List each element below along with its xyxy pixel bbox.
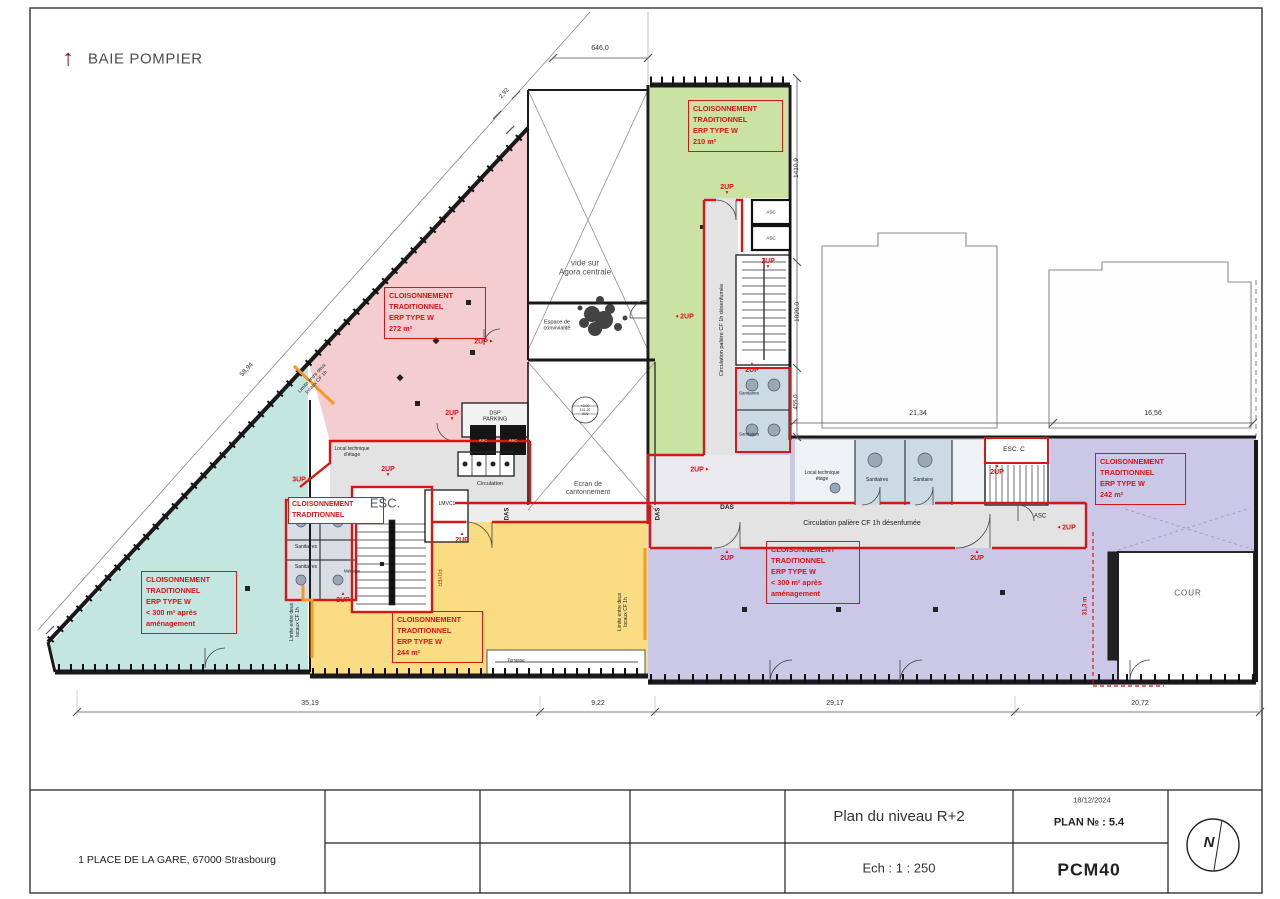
exit-marker: ◄2UP <box>674 314 694 321</box>
sanitaires-label-1: Sanitaires <box>295 545 317 551</box>
triangle-right-icon: ► <box>489 340 494 345</box>
dim-bottom-1: 35,19 <box>301 700 319 708</box>
project-address: 1 PLACE DE LA GARE, 67000 Strasbourg <box>78 854 276 866</box>
neighbour-buildings <box>822 233 1256 437</box>
exit-marker: 2UP► <box>474 339 494 346</box>
espace-convivialite-label: Espace de convivialité <box>544 320 571 333</box>
dim-right-3: 455,0 <box>793 394 800 409</box>
zone-label-teal: CLOISONNEMENT TRADITIONNEL ERP TYPE W < … <box>141 571 237 634</box>
sanitaires-label-5: Sanitaires <box>739 431 759 436</box>
elevation-values: +0.00 141.20 IGN <box>580 404 591 416</box>
dim-bottom-3: 29,17 <box>826 700 844 708</box>
dim-top: 646,0 <box>591 45 609 53</box>
foyer-label: FOYER <box>435 569 441 586</box>
exit-marker: ▲2UP <box>990 464 1004 476</box>
dim-mid-2: 16,56 <box>1144 410 1162 418</box>
dim-red-vertical: 31,3 m <box>1082 597 1089 616</box>
plan-sheet: ↑ BAIE POMPIER CLOISONNEMENT TRADITIONNE… <box>0 0 1280 899</box>
marker-label: 2UP <box>720 555 734 562</box>
exit-marker: 2UP▼ <box>761 258 775 270</box>
triangle-down-icon: ▼ <box>725 191 730 196</box>
dim-mid-1: 21,34 <box>909 410 927 418</box>
triangle-right-icon: ► <box>307 478 312 483</box>
sanitaires-label-2: Sanitaires <box>295 565 317 571</box>
page-title: BAIE POMPIER <box>88 51 203 68</box>
asc-label-3: ASC <box>479 439 487 444</box>
marker-label: 2UP <box>990 469 1004 476</box>
marker-label: 2UP <box>474 339 488 346</box>
marker-label: 3UP <box>292 477 306 484</box>
zone-label-purple-right: CLOISONNEMENT TRADITIONNEL ERP TYPE W 24… <box>1095 453 1186 505</box>
marker-label: 2UP <box>690 467 704 474</box>
terrasse-label: Terrasse <box>507 657 524 662</box>
triangle-right-icon: ► <box>705 468 710 473</box>
exit-marker: 2UP▼ <box>381 466 395 478</box>
triangle-down-icon: ▼ <box>766 265 771 270</box>
marker-label: 2UP <box>455 537 469 544</box>
zone-label-yellow: CLOISONNEMENT TRADITIONNEL ERP TYPE W 24… <box>392 611 483 663</box>
exit-marker: 3UP► <box>292 477 312 484</box>
plan-number: PLAN № : 5.4 <box>1054 817 1124 830</box>
sanitaires-label-3: Sanitaires <box>866 478 888 484</box>
exit-marker: 2UP▼ <box>445 410 459 422</box>
exit-marker: ▲2UP <box>455 532 469 544</box>
drawing-title: Plan du niveau R+2 <box>833 808 964 826</box>
asc-label-4: ASC <box>509 439 517 444</box>
exit-marker: ▲2UP <box>720 550 734 562</box>
stair-esc-label: ESC. <box>370 495 400 510</box>
marker-label: 2UP <box>970 555 984 562</box>
das-label-1: DAS <box>504 508 511 521</box>
triangle-left-icon: ◄ <box>674 315 679 320</box>
stair-esc-c-label: ESC. C <box>1003 446 1025 454</box>
triangle-down-icon: ▼ <box>386 473 391 478</box>
dim-bottom-2: 9,22 <box>591 700 605 708</box>
dim-right-2: 1020,0 <box>794 302 802 322</box>
limite-label-1: Limite entre deux locaux CF 1h <box>290 603 302 641</box>
dim-bottom-4: 20,72 <box>1131 700 1149 708</box>
exit-marker: ▲2UP <box>970 550 984 562</box>
ecran-cantonnement-label: Ecran de cantonnement <box>566 481 610 498</box>
triangle-left-icon: ◄ <box>1056 526 1061 531</box>
drawing-scale: Ech : 1 : 250 <box>863 860 936 875</box>
north-indicator: N <box>1204 834 1215 852</box>
das-label-2: DAS <box>655 508 662 521</box>
circulation-label: Circulation <box>477 481 503 487</box>
menage-label: Ménage <box>344 568 360 573</box>
local-technique-2-label: Local technique étage <box>804 471 839 483</box>
marker-label: 2UP <box>680 314 694 321</box>
exit-marker: ▲2UP <box>336 592 350 604</box>
triangle-down-icon: ▼ <box>450 417 455 422</box>
circulation-paliere-h-label: Circulation palière CF 1h désenfumée <box>803 520 921 528</box>
zone-label-green: CLOISONNEMENT TRADITIONNEL ERP TYPE W 21… <box>688 100 783 152</box>
zone-label-pink: CLOISONNEMENT TRADITIONNEL ERP TYPE W 27… <box>384 287 486 339</box>
limite-label-2: Limite entre deux locaux CF 1h <box>618 593 630 631</box>
circulation-paliere-v-label: Circulation palière CF 1h désenfumée <box>719 255 725 405</box>
marker-label: 2UP <box>336 597 350 604</box>
fire-access-arrow-icon: ↑ <box>62 45 74 72</box>
dsp-parking-label: DSP PARKING <box>483 411 507 424</box>
asc-label-2: ASC <box>766 235 775 240</box>
zone-pink-area <box>309 128 528 441</box>
marker-label: 2UP <box>1062 525 1076 532</box>
dim-right-1: 1410,9 <box>793 158 801 178</box>
das-label-3: DAS <box>720 504 734 512</box>
lmvc-label: LMVC1 <box>439 502 456 508</box>
cour-label: COUR <box>1174 588 1202 597</box>
zone-label-purple-left: CLOISONNEMENT TRADITIONNEL ERP TYPE W < … <box>766 541 860 604</box>
exit-marker: ▲2UP <box>745 362 759 374</box>
asc-label-1: ASC <box>766 209 775 214</box>
floor-plan-drawing <box>0 0 1280 899</box>
exit-marker: ◄2UP <box>1056 525 1076 532</box>
drawing-code: PCM40 <box>1057 860 1120 881</box>
asc-label-corridor: ASC <box>1034 513 1046 520</box>
exit-marker: 2UP▼ <box>720 184 734 196</box>
sanitaires-label-4: Sanitaires <box>739 390 759 395</box>
local-technique-label: Local technique d'étage <box>334 447 369 459</box>
marker-label: 2UP <box>745 367 759 374</box>
exit-marker: 2UP► <box>690 467 710 474</box>
agora-void-label: vide sur Agora centrale <box>559 259 611 278</box>
drawing-date: 18/12/2024 <box>1073 797 1111 806</box>
sanitaire-label: Sanitaire <box>913 478 933 484</box>
